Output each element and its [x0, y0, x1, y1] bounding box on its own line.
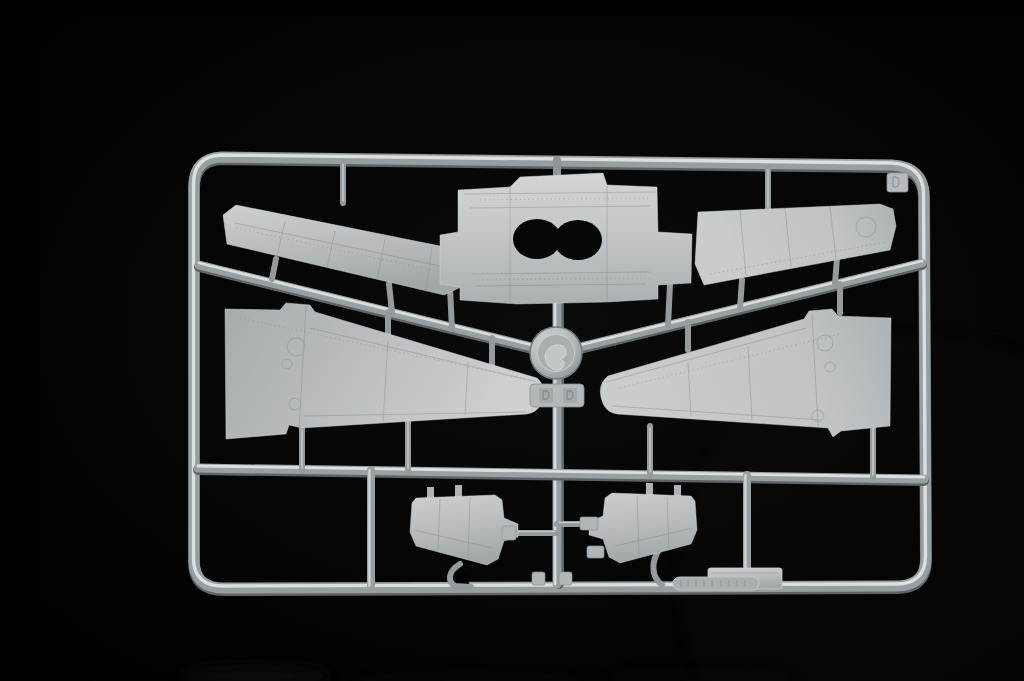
- corner-letter-tab: small embossed square tab on right frame…: [887, 173, 908, 192]
- gate-block: [502, 526, 516, 540]
- part-lower-wing-center: one-piece lower wing centre section with…: [440, 173, 692, 304]
- sprue-photo-canvas: faint reflection of the sprue on the glo…: [40, 16, 1024, 681]
- runner-connector-left: left vertical connector: [369, 470, 371, 586]
- embossed-text-plate: embossed oval text plate on bottom runne…: [673, 577, 759, 590]
- manufacturer-logo-medallion: embossed circular manufacturer medallion…: [530, 327, 582, 379]
- sprue-letter-tag: embossed sprue-letter tag with two stamp…: [530, 384, 584, 407]
- sprue-photo: faint reflection of the sprue on the glo…: [40, 16, 1024, 681]
